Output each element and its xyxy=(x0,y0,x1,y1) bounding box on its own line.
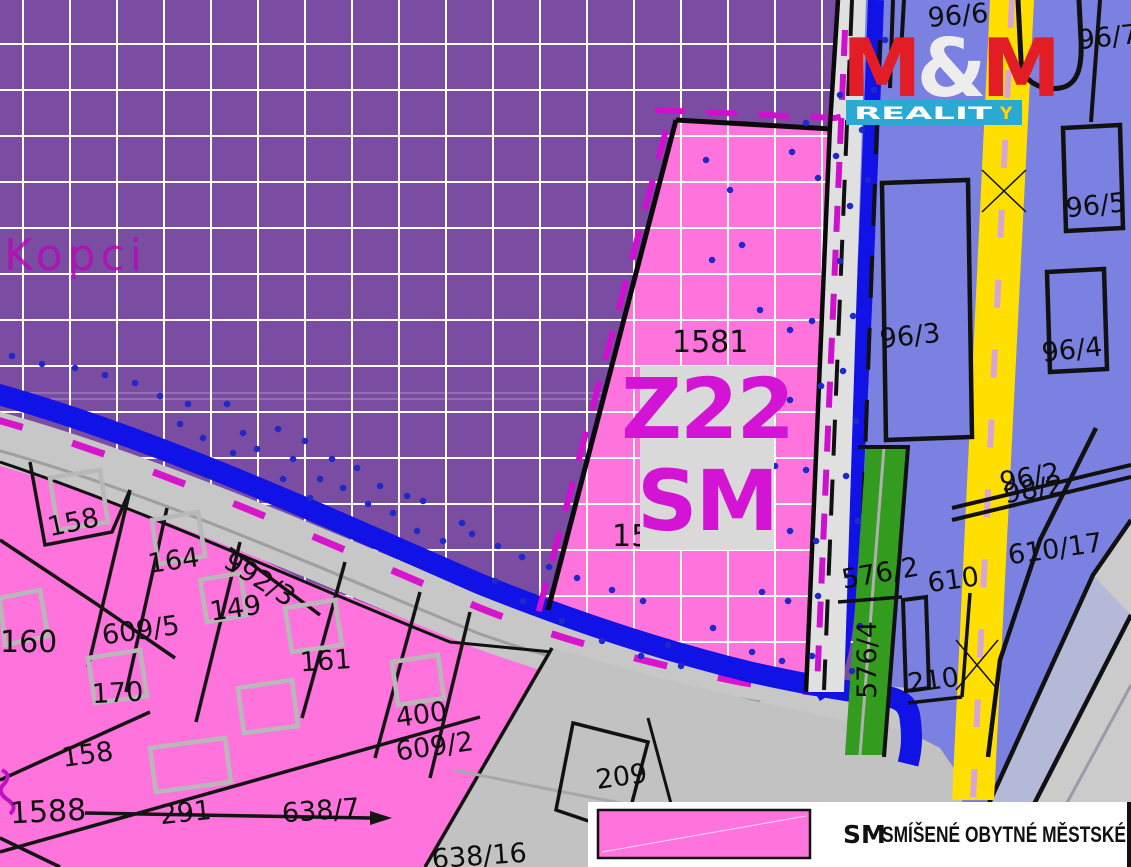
parcel-label-638-7: 638/7 xyxy=(281,793,361,829)
zone-label-box: Z22 SM xyxy=(621,360,793,550)
zone-code: Z22 xyxy=(621,360,793,458)
parcel-label-1581: 1581 xyxy=(672,325,748,360)
logo-reality-text: REALIT xyxy=(854,104,993,124)
parcel-label-96-4: 96/4 xyxy=(1040,332,1104,369)
legend-label: SMÍŠENÉ OBYTNÉ MĚSTSKÉ xyxy=(882,822,1126,847)
parcel-label-170: 170 xyxy=(91,676,144,710)
zoning-map-canvas: 15 Z22 SM 1581 96/6 96/7 96/5 96/3 96/4 … xyxy=(0,0,1131,867)
zone-type: SM xyxy=(637,452,777,550)
parcel-label-291: 291 xyxy=(158,795,213,831)
legend: SM SMÍŠENÉ OBYTNÉ MĚSTSKÉ xyxy=(588,802,1131,867)
parcel-label-96-5: 96/5 xyxy=(1064,187,1128,224)
parcel-label-160: 160 xyxy=(0,625,57,660)
parcel-label-1588: 1588 xyxy=(9,793,87,832)
parcel-label-161: 161 xyxy=(299,644,353,679)
logo-reality-y: Y xyxy=(999,104,1013,124)
parcel-label-96-3: 96/3 xyxy=(878,318,942,355)
legend-code: SM xyxy=(843,820,886,849)
parcel-label-96-7: 96/7 xyxy=(1076,19,1131,56)
place-label-kopci: Kopci xyxy=(4,230,147,281)
mm-reality-logo: M&M REALIT Y xyxy=(842,22,1056,125)
parcel-label-576-4: 576/4 xyxy=(852,621,883,699)
